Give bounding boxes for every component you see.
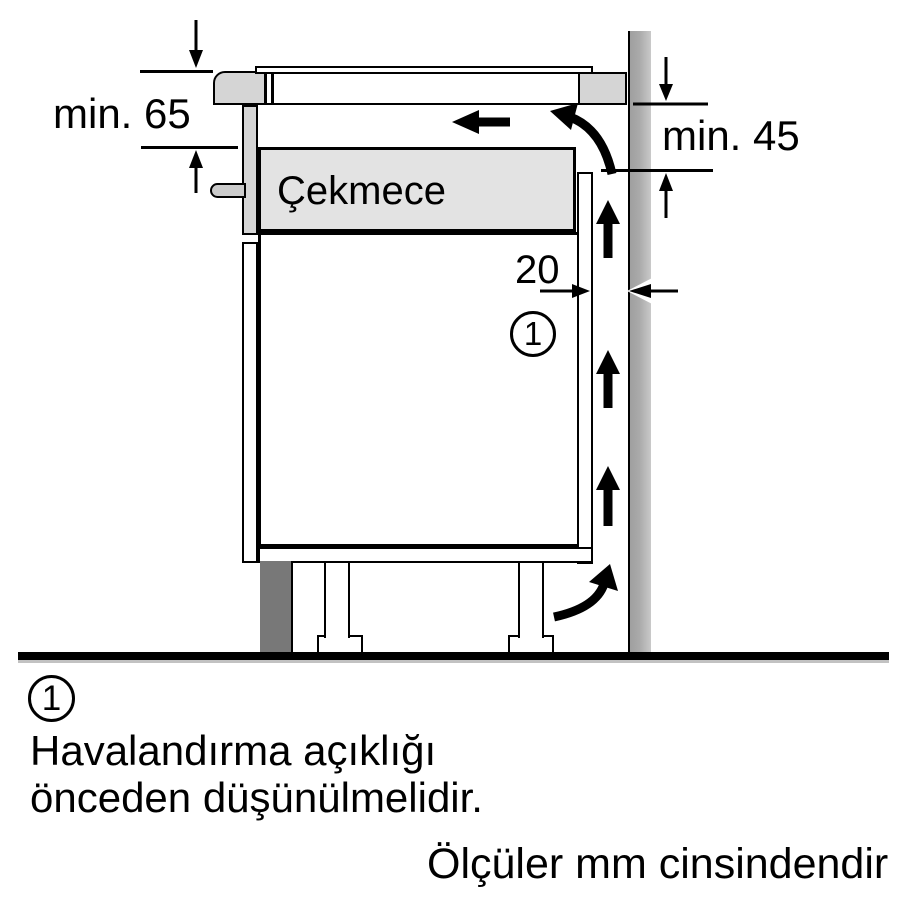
dim-arrow-up-head: [189, 150, 203, 168]
airflow-curve-bottom: [554, 584, 604, 617]
leg-right-shaft: [518, 561, 544, 638]
airflow-up-arrow-2-head: [596, 350, 620, 374]
dim-label-gap20: 20: [515, 249, 560, 291]
airflow-up-arrow-3-shaft: [604, 488, 613, 526]
airflow-up-arrow-1-shaft: [604, 222, 613, 258]
airflow-up-arrow-1-head: [596, 200, 620, 224]
wall: [628, 31, 651, 653]
airflow-left-arrow-shaft: [477, 118, 510, 127]
worktop-right: [578, 72, 627, 105]
legend-note-line-2: önceden düşünülmelidir.: [30, 774, 483, 821]
hob-body-sidewall: [271, 73, 274, 103]
floor-line: [18, 652, 889, 660]
airflow-left-arrow-head: [452, 110, 479, 134]
dim-label-min65: min. 65: [53, 92, 191, 136]
airflow-curve-top-head: [550, 103, 578, 130]
dim-label-min45: min. 45: [662, 114, 800, 158]
legend-callout-1-badge: 1: [28, 675, 75, 722]
floor-shadow: [18, 660, 889, 663]
dim-arrow-down-head: [189, 50, 203, 68]
callout-1-number: 1: [524, 315, 542, 353]
installation-diagram-page: { "diagram": { "drawer_label": "Çekmece"…: [0, 0, 900, 900]
mounting-pin: [210, 183, 246, 198]
cabinet-back-panel: [577, 172, 593, 564]
worktop-left: [213, 71, 266, 105]
airflow-curve-top: [570, 117, 612, 174]
airflow-up-arrow-2-shaft: [604, 372, 613, 408]
drawer-label: Çekmece: [277, 170, 446, 212]
hob-glass: [255, 66, 593, 74]
dim-arrow-down-head: [659, 84, 673, 101]
legend-note-line-1: Havalandırma açıklığı: [30, 727, 436, 774]
drawer-front-panel: [242, 105, 258, 235]
hob-body: [265, 71, 580, 105]
plinth: [260, 561, 293, 653]
leg-left-shaft: [324, 561, 350, 638]
airflow-up-arrow-3-head: [596, 466, 620, 490]
cabinet-door-front: [242, 242, 258, 563]
units-note: Ölçüler mm cinsindendir: [427, 840, 888, 888]
dim-arrow-up-head: [659, 173, 673, 191]
legend-callout-1-number: 1: [42, 679, 61, 719]
airflow-curve-bottom-head: [589, 564, 618, 591]
callout-1-badge: 1: [510, 311, 556, 357]
